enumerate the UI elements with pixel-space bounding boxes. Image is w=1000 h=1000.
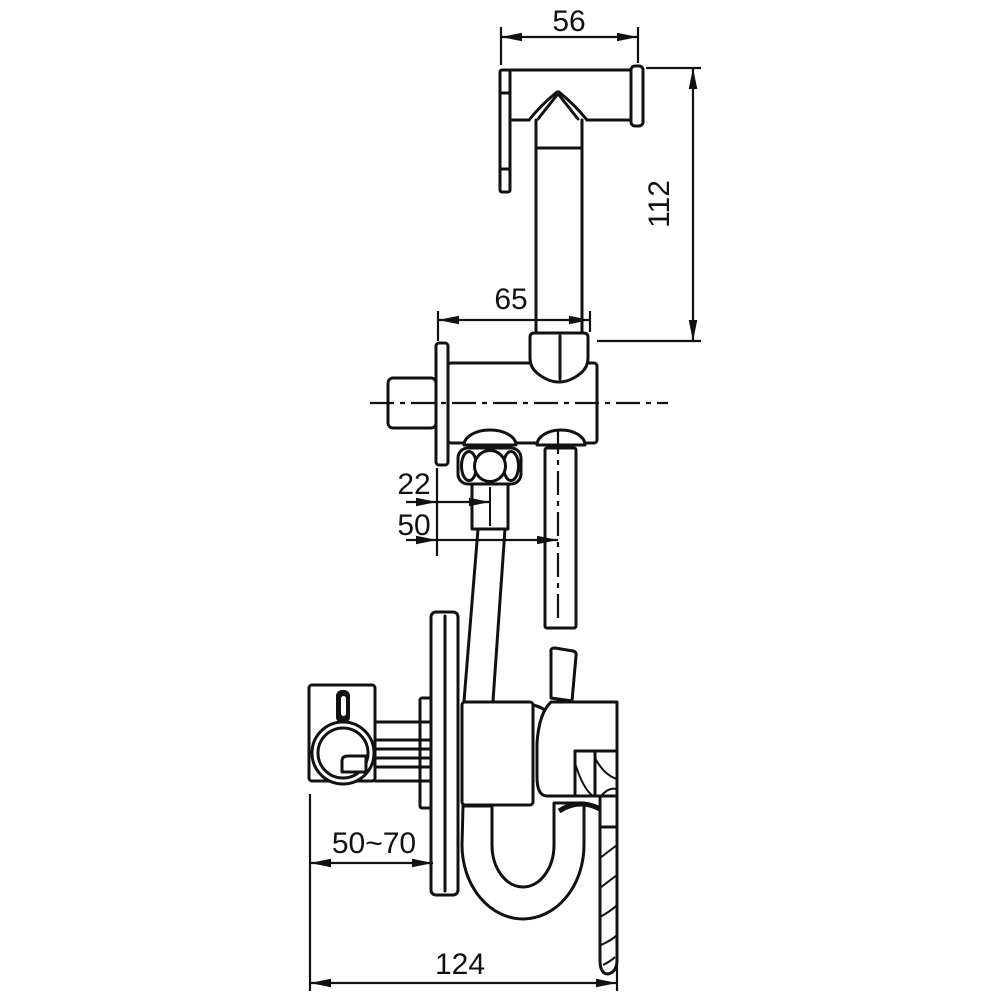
dimension-label: 56 — [552, 5, 585, 38]
arrowhead — [310, 859, 331, 868]
arrowhead — [438, 316, 459, 325]
dimension-label: 124 — [435, 948, 485, 981]
arrowhead — [596, 979, 617, 988]
dimension-sprayer-height: 112 — [597, 68, 701, 341]
dimension-label: 112 — [643, 180, 676, 228]
sprayer-head — [500, 66, 643, 192]
cartridge-keyway — [342, 756, 366, 772]
cone-joint-inner — [538, 95, 578, 119]
hose-upper-left-edge — [464, 529, 478, 701]
dimension-label: 65 — [494, 283, 527, 316]
hose-u-loop — [462, 803, 584, 919]
arrowhead — [689, 320, 698, 341]
spray-face-plate — [500, 70, 510, 192]
arrowhead — [617, 33, 638, 42]
dimension-mount-depth: 50~70 — [310, 794, 433, 876]
dimension-label: 50~70 — [332, 827, 416, 860]
arrowhead — [501, 33, 522, 42]
cone-joint-outer — [529, 92, 587, 120]
valve-stem-slot — [341, 696, 346, 716]
dimension-label: 22 — [397, 468, 430, 501]
dimension-label: 50 — [397, 509, 430, 542]
arrowhead — [310, 979, 331, 988]
lever-arm — [551, 648, 576, 701]
sprayer-lower-tube — [545, 448, 576, 628]
bidet-sprayer-technical-drawing: 56 112 65 22 50 50~70 — [0, 0, 1000, 1000]
arrowhead — [569, 316, 590, 325]
dimension-head-width: 56 — [501, 5, 638, 65]
sprayer-wand — [536, 120, 582, 333]
hose-upper-right-edge — [493, 529, 505, 701]
arrowhead — [689, 68, 698, 89]
head-end-cap — [631, 66, 643, 126]
swivel-nut-facet-center — [475, 451, 506, 482]
mixer-trim-box — [462, 702, 533, 805]
